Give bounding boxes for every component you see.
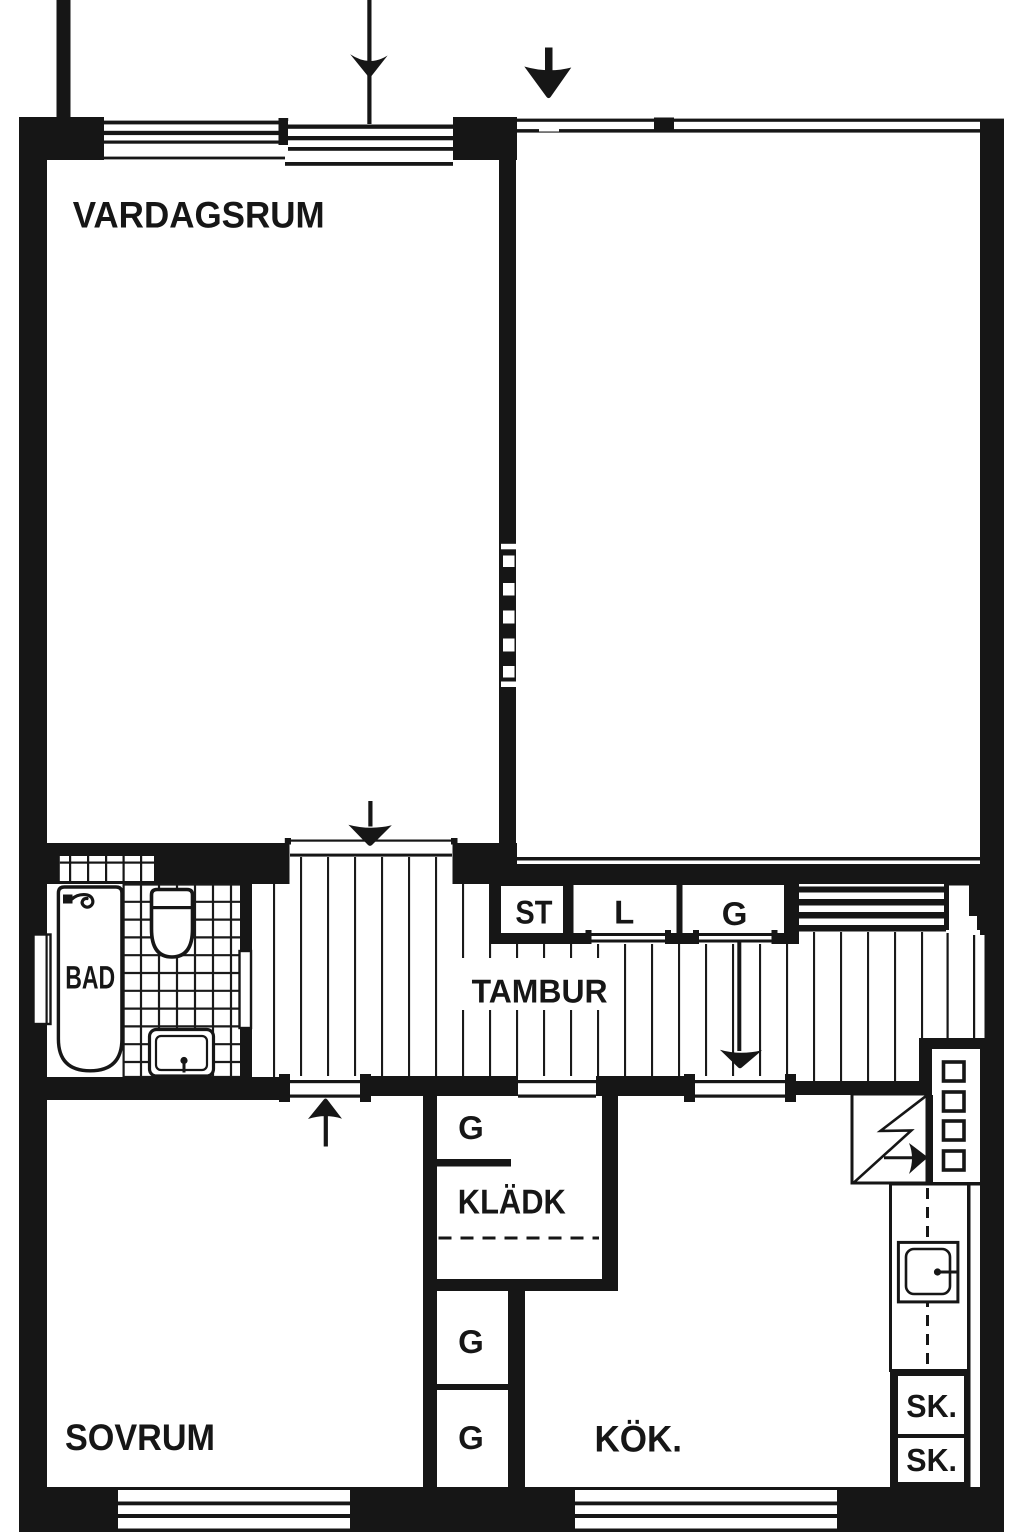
svg-text:KLÄDK: KLÄDK (458, 1184, 566, 1222)
svg-text:VARDAGSRUM: VARDAGSRUM (73, 195, 325, 236)
svg-text:BAD: BAD (65, 960, 115, 996)
svg-text:G: G (458, 1323, 484, 1360)
svg-text:G: G (458, 1109, 484, 1146)
svg-text:SOVRUM: SOVRUM (65, 1417, 215, 1458)
svg-text:TAMBUR: TAMBUR (472, 972, 608, 1009)
svg-text:SK.: SK. (906, 1388, 957, 1424)
svg-text:G: G (722, 895, 748, 932)
svg-text:SK.: SK. (906, 1442, 957, 1478)
svg-text:G: G (458, 1419, 484, 1456)
svg-text:L: L (614, 893, 634, 930)
svg-text:KÖK.: KÖK. (595, 1419, 683, 1460)
svg-text:ST: ST (515, 893, 552, 930)
